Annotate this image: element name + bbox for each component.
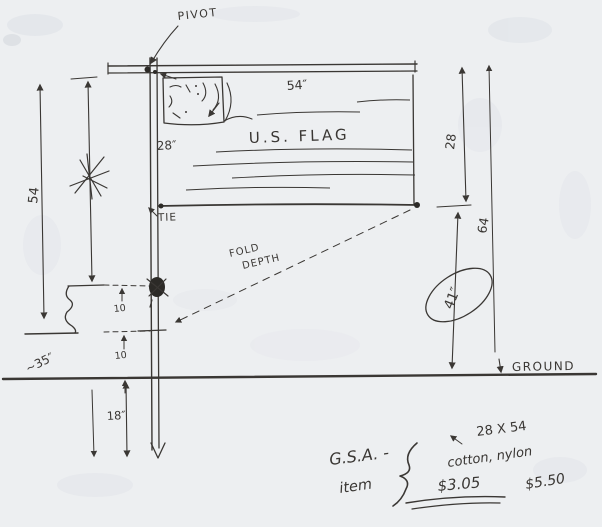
price-cotton-label: $3.05 <box>437 473 481 495</box>
ground-label: GROUND <box>512 359 575 374</box>
flag-name-label: U.S. FLAG <box>249 125 350 147</box>
tie-label: TIE <box>157 211 178 224</box>
wall-lower-line <box>25 333 78 334</box>
total-height-label: 64 <box>474 216 492 234</box>
flag-width-label: 54″ <box>286 77 308 93</box>
canton-width-label: 28″ <box>156 138 177 153</box>
paper-speckle <box>250 329 360 361</box>
paper-speckle <box>210 6 300 22</box>
scribble-dot <box>185 111 187 113</box>
paper-speckle <box>7 14 63 36</box>
flag-sketch: PIVOT 5 <box>0 0 602 527</box>
scribble-dot <box>197 93 199 95</box>
flag-corner-dot-left <box>159 204 164 209</box>
pivot-pin-dot-small <box>153 70 157 74</box>
pole-height-label: 54 <box>26 186 43 204</box>
below-ground-depth-label: 18″ <box>106 408 126 423</box>
flag-corner-dot <box>414 202 420 208</box>
paper-speckle <box>488 17 552 43</box>
pivot-pin-dot <box>145 67 151 73</box>
paper-speckle <box>3 34 21 46</box>
scribble-dot <box>195 85 197 87</box>
flag-drop-label: 28 <box>442 133 459 151</box>
gap-lower-label: 10 <box>114 350 127 362</box>
paper-speckle <box>57 473 133 497</box>
paper-speckle <box>559 171 591 239</box>
gap-upper-label: 10 <box>113 303 126 315</box>
scanned-sketch-page: PIVOT 5 <box>0 0 602 527</box>
